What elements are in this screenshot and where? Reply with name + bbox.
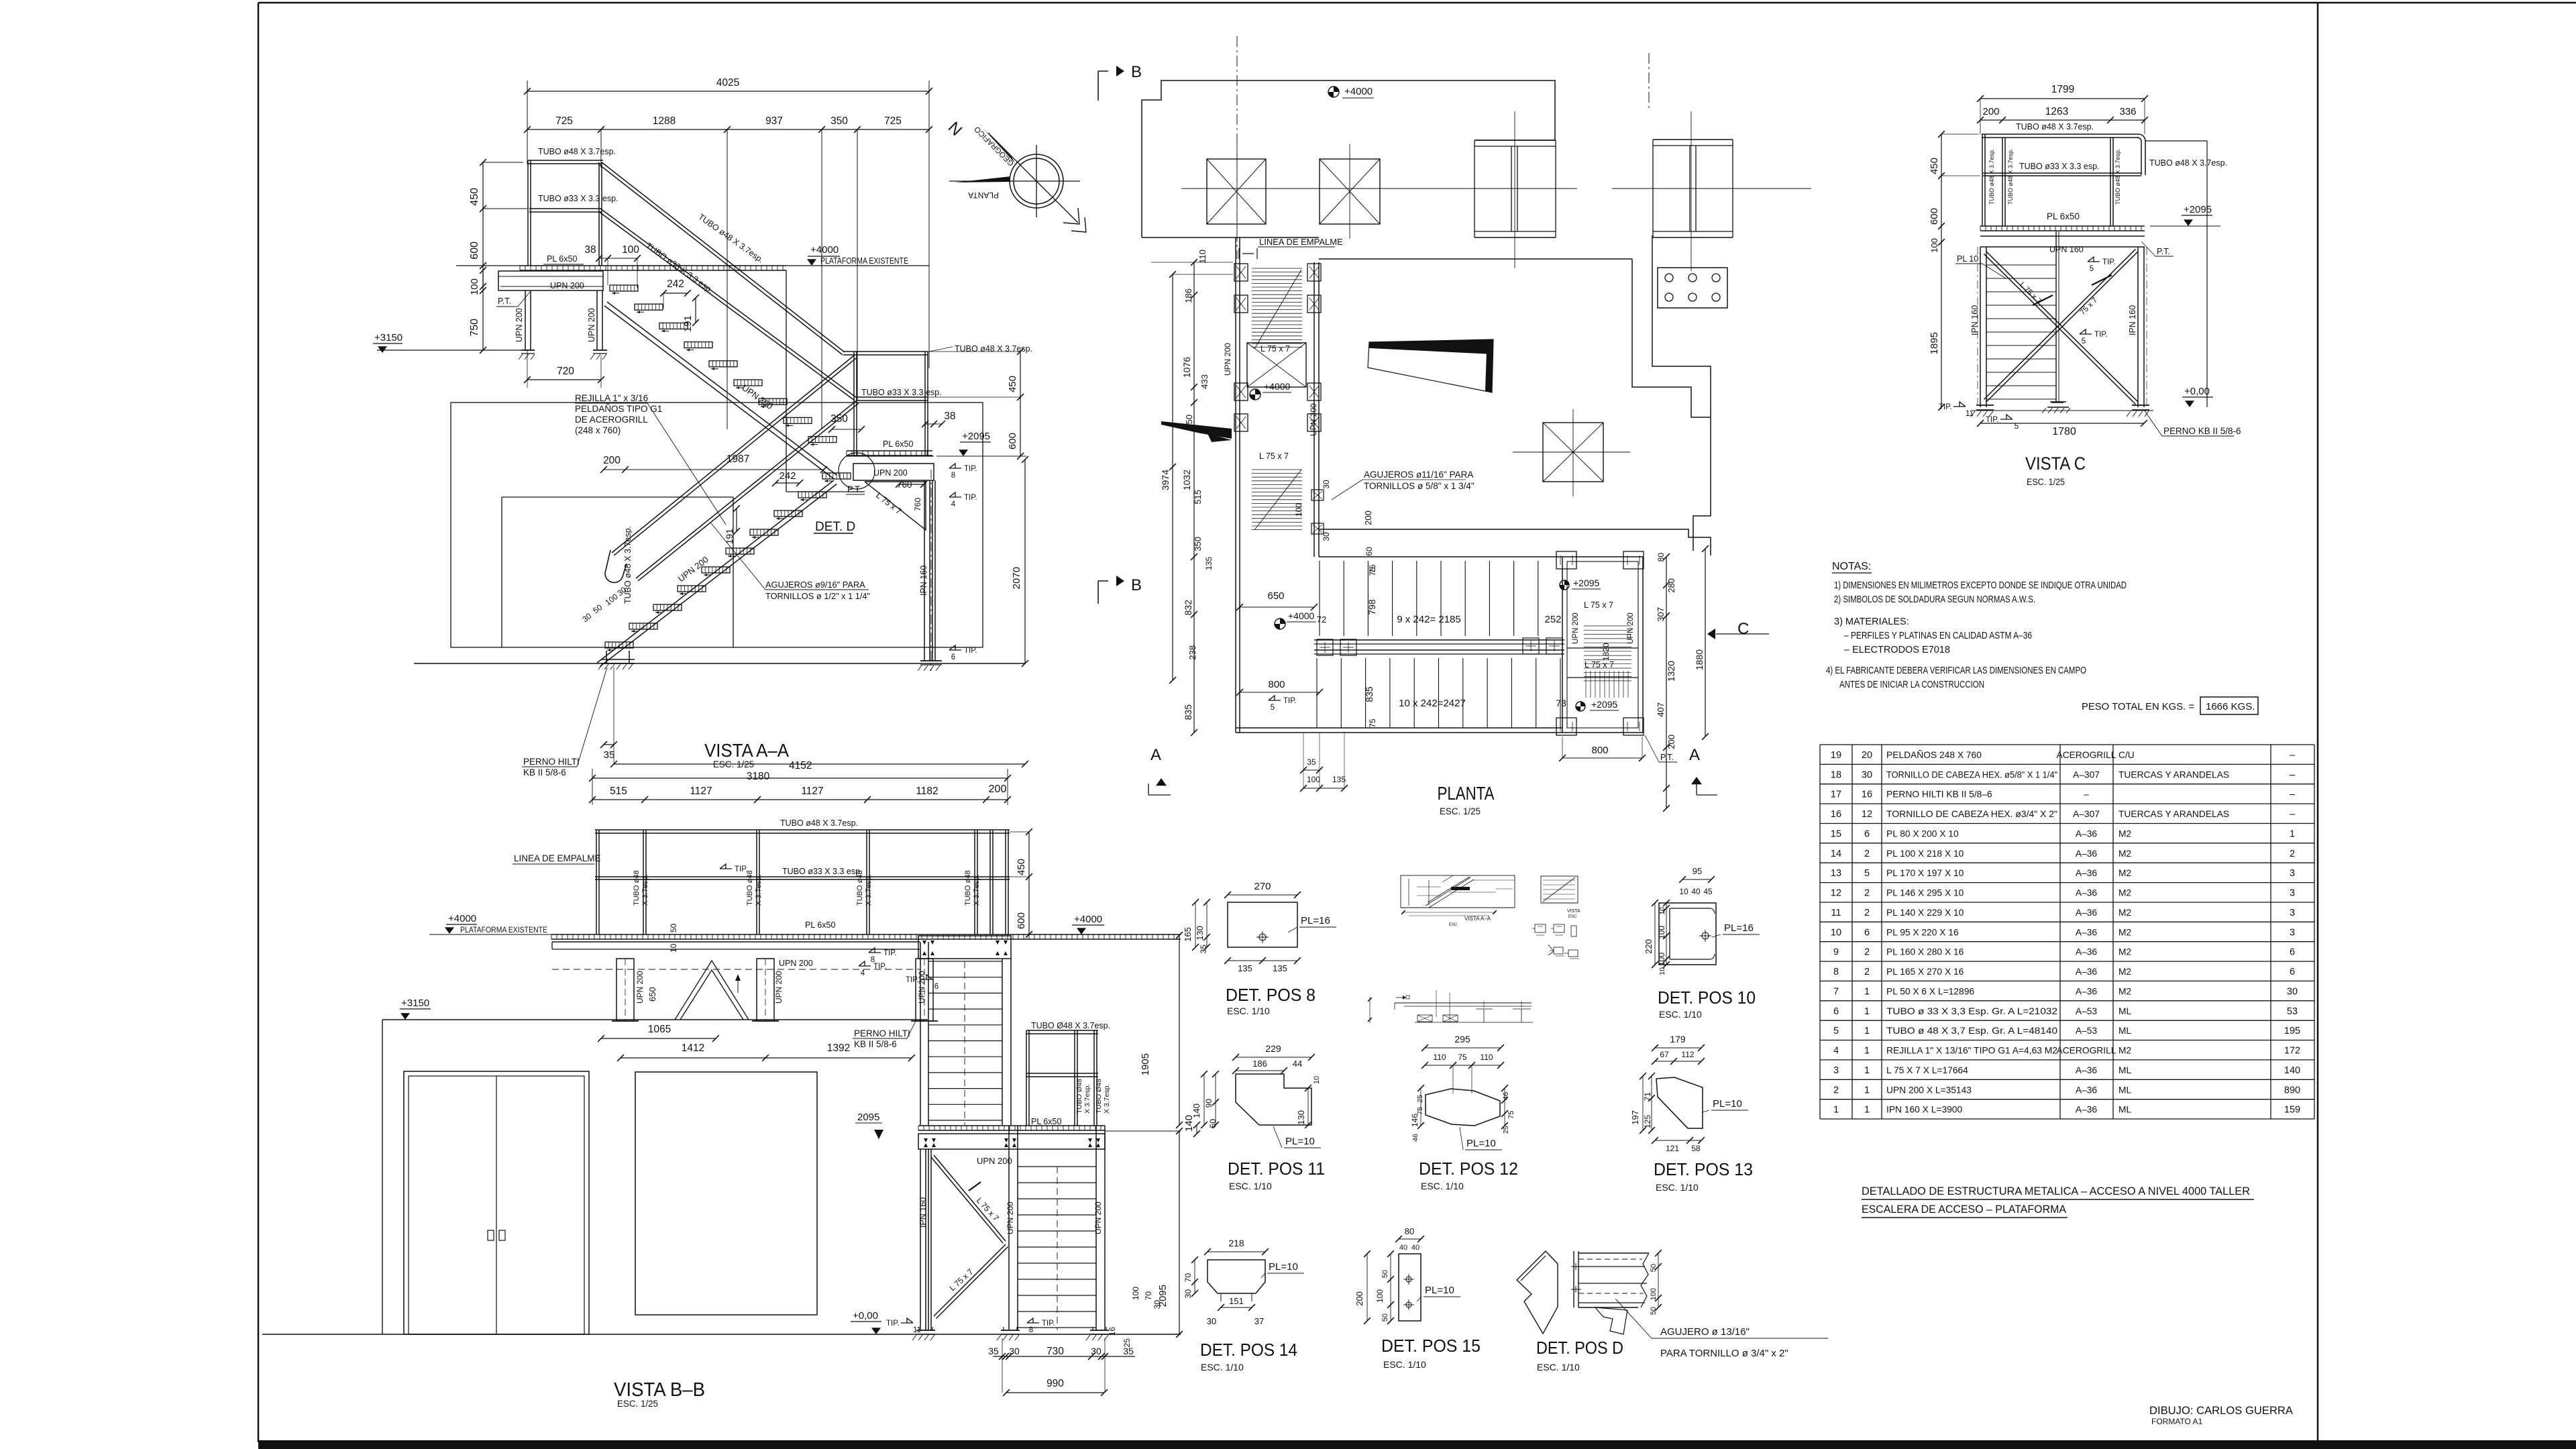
svg-text:832: 832 — [1183, 600, 1193, 616]
svg-text:100: 100 — [1375, 1289, 1385, 1303]
svg-text:+3150: +3150 — [374, 332, 402, 343]
svg-text:835: 835 — [1364, 686, 1375, 702]
svg-text:725: 725 — [884, 115, 902, 127]
svg-text:PL=16: PL=16 — [1724, 922, 1754, 934]
svg-text:200: 200 — [1363, 511, 1373, 525]
svg-text:A–36: A–36 — [2076, 947, 2098, 957]
svg-text:1076: 1076 — [1181, 357, 1192, 378]
svg-text:DET. POS 13: DET. POS 13 — [1654, 1159, 1753, 1179]
svg-text:UPN 200: UPN 200 — [1572, 612, 1580, 644]
svg-text:72: 72 — [1317, 614, 1326, 625]
svg-text:TIP.: TIP. — [873, 963, 887, 971]
svg-text:5: 5 — [2015, 423, 2019, 431]
svg-text:112: 112 — [1681, 1050, 1694, 1059]
svg-text:750: 750 — [469, 319, 480, 337]
svg-text:80: 80 — [1656, 553, 1666, 562]
svg-text:6: 6 — [1833, 1006, 1839, 1017]
svg-text:ML: ML — [2118, 1085, 2131, 1095]
svg-text:P.T.: P.T. — [1660, 753, 1674, 762]
svg-text:UPN 200: UPN 200 — [587, 308, 596, 342]
svg-text:197: 197 — [1630, 1110, 1640, 1125]
svg-text:ML: ML — [2118, 1026, 2131, 1036]
svg-text:336: 336 — [2119, 106, 2136, 117]
svg-text:186: 186 — [1183, 288, 1193, 303]
svg-text:P.T.: P.T. — [2157, 247, 2170, 256]
svg-text:UPN 200 X L=35143: UPN 200 X L=35143 — [1886, 1085, 1972, 1095]
svg-text:A–36: A–36 — [2076, 849, 2098, 859]
svg-text:242: 242 — [779, 470, 796, 482]
svg-text:90: 90 — [1204, 1099, 1214, 1108]
svg-text:A: A — [1150, 746, 1161, 764]
svg-text:4: 4 — [1833, 1046, 1839, 1057]
svg-text:PL 146 X 295 X 10: PL 146 X 295 X 10 — [1886, 888, 1964, 898]
svg-text:6: 6 — [1864, 927, 1870, 938]
svg-text:+4000: +4000 — [448, 913, 476, 924]
svg-text:135: 135 — [1238, 963, 1252, 973]
svg-text:PL 160 X 280 X 16: PL 160 X 280 X 16 — [1886, 947, 1964, 957]
svg-text:6: 6 — [1864, 829, 1870, 840]
svg-text:PLATAFORMA EXISTENTE: PLATAFORMA EXISTENTE — [460, 925, 547, 934]
svg-text:ESC. 1/10: ESC. 1/10 — [1421, 1181, 1464, 1191]
svg-text:A–36: A–36 — [2076, 986, 2098, 996]
svg-text:A–36: A–36 — [2076, 888, 2098, 898]
svg-text:18: 18 — [1831, 769, 1841, 780]
svg-text:TUBO ø48 X 3.7esp.: TUBO ø48 X 3.7esp. — [2149, 158, 2227, 168]
svg-text:13: 13 — [1831, 868, 1841, 879]
svg-text:191: 191 — [724, 529, 735, 545]
svg-text:M2: M2 — [2118, 908, 2131, 918]
svg-text:11: 11 — [1966, 410, 1974, 418]
svg-text:35: 35 — [604, 749, 615, 761]
svg-text:+2095: +2095 — [1591, 699, 1618, 710]
svg-text:PL=10: PL=10 — [1466, 1138, 1496, 1149]
svg-text:38: 38 — [584, 244, 596, 256]
svg-text:890: 890 — [2284, 1085, 2300, 1095]
svg-text:3180: 3180 — [747, 771, 770, 782]
svg-text:38: 38 — [944, 411, 955, 422]
svg-text:TIP.: TIP. — [1283, 697, 1297, 705]
svg-text:20: 20 — [1862, 750, 1872, 761]
svg-text:PL 95 X 220 X 16: PL 95 X 220 X 16 — [1886, 927, 1959, 937]
svg-text:600: 600 — [469, 241, 480, 260]
svg-text:70: 70 — [1144, 1291, 1153, 1301]
svg-text:2: 2 — [1864, 888, 1870, 899]
svg-text:TIP.: TIP. — [735, 865, 748, 873]
svg-text:–: – — [2290, 769, 2296, 780]
svg-text:30: 30 — [2287, 986, 2298, 997]
svg-text:650: 650 — [1267, 590, 1284, 602]
svg-text:1412: 1412 — [682, 1042, 704, 1054]
svg-text:PELDAÑOS TIPO G1: PELDAÑOS TIPO G1 — [575, 404, 662, 414]
svg-text:PERNO HILTI: PERNO HILTI — [523, 757, 580, 767]
svg-text:200: 200 — [1354, 1291, 1364, 1306]
svg-text:M2: M2 — [2118, 927, 2131, 937]
svg-text:+0,00: +0,00 — [2184, 386, 2210, 397]
svg-text:200: 200 — [1666, 735, 1676, 749]
svg-text:PL 6x50: PL 6x50 — [1031, 1117, 1061, 1126]
svg-text:6: 6 — [951, 653, 955, 661]
svg-text:ACEROGRILL: ACEROGRILL — [2057, 1046, 2116, 1056]
svg-text:– PERFILES Y PLATINAS EN CALI: – PERFILES Y PLATINAS EN CALIDAD ASTM A–… — [1844, 631, 2032, 641]
svg-text:ML: ML — [2118, 1065, 2131, 1075]
svg-text:3: 3 — [2290, 868, 2295, 879]
svg-text:M2: M2 — [2118, 829, 2131, 839]
svg-text:A–36: A–36 — [2076, 908, 2098, 918]
svg-text:TUBO ø48 X 3.7esp.: TUBO ø48 X 3.7esp. — [1988, 148, 1995, 205]
svg-text:PERNO HILTI KB II 5/8–6: PERNO HILTI KB II 5/8–6 — [1886, 790, 1992, 800]
svg-text:+4000: +4000 — [1074, 914, 1102, 925]
svg-text:UPN 200: UPN 200 — [1093, 1201, 1103, 1234]
svg-text:6: 6 — [2290, 947, 2295, 958]
svg-text:ESC. 1/10: ESC. 1/10 — [1537, 1362, 1580, 1373]
svg-text:12: 12 — [1862, 809, 1872, 820]
svg-text:4: 4 — [861, 969, 865, 977]
svg-text:252: 252 — [1544, 614, 1561, 625]
svg-text:C: C — [1737, 620, 1749, 638]
svg-text:125: 125 — [1643, 1115, 1652, 1128]
svg-text:350: 350 — [830, 115, 848, 127]
svg-text:58: 58 — [1691, 1144, 1701, 1153]
svg-text:100: 100 — [1131, 1287, 1140, 1300]
svg-text:–: – — [2084, 790, 2089, 800]
svg-text:10: 10 — [1313, 1076, 1321, 1084]
svg-text:LINEA DE EMPALME: LINEA DE EMPALME — [514, 853, 601, 863]
svg-text:ESC: ESC — [1449, 923, 1458, 927]
svg-text:100: 100 — [622, 244, 639, 256]
svg-text:2: 2 — [1864, 967, 1870, 977]
svg-text:50: 50 — [669, 923, 678, 932]
svg-text:172: 172 — [2284, 1046, 2300, 1057]
svg-text:10: 10 — [1658, 967, 1666, 975]
svg-text:146: 146 — [1410, 1114, 1419, 1127]
svg-text:PL 170 X 197 X 10: PL 170 X 197 X 10 — [1886, 868, 1964, 878]
svg-text:238: 238 — [1187, 645, 1197, 660]
svg-text:75: 75 — [1368, 718, 1377, 728]
svg-text:A–307: A–307 — [2073, 769, 2100, 780]
svg-text:PL 80 X 200 X 10: PL 80 X 200 X 10 — [1886, 829, 1959, 839]
svg-text:AGUJEROS ø11/16" PARA: AGUJEROS ø11/16" PARA — [1364, 470, 1473, 480]
svg-text:A–53: A–53 — [2076, 1006, 2098, 1016]
svg-text:DET. POS 12: DET. POS 12 — [1419, 1159, 1518, 1179]
svg-text:186: 186 — [1252, 1059, 1267, 1069]
svg-text:8: 8 — [1029, 1326, 1033, 1334]
svg-text:19: 19 — [1831, 750, 1841, 761]
svg-text:75: 75 — [1458, 1053, 1467, 1062]
svg-text:PL=10: PL=10 — [1713, 1098, 1742, 1110]
svg-text:A–36: A–36 — [2076, 868, 2098, 878]
svg-text:+4000: +4000 — [1264, 381, 1291, 392]
svg-text:1320: 1320 — [1666, 661, 1676, 682]
svg-text:75: 75 — [1368, 567, 1377, 576]
svg-text:PLATAFORMA EXISTENTE: PLATAFORMA EXISTENTE — [820, 256, 908, 266]
svg-text:DIBUJO: CARLOS GUERRA: DIBUJO: CARLOS GUERRA — [2149, 1405, 2293, 1417]
svg-text:25: 25 — [1416, 1095, 1424, 1103]
svg-text:A–36: A–36 — [2076, 1065, 2098, 1075]
svg-text:135: 135 — [1332, 775, 1346, 784]
svg-text:A–307: A–307 — [2073, 809, 2100, 819]
svg-text:TUBO ø 33 X 3,3 Esp. Gr. A L=2: TUBO ø 33 X 3,3 Esp. Gr. A L=21032 — [1886, 1006, 2057, 1016]
svg-text:TUBO ø48 X 3.7esp.: TUBO ø48 X 3.7esp. — [2114, 148, 2121, 205]
svg-text:8: 8 — [1833, 967, 1839, 977]
svg-text:PLANTA: PLANTA — [1438, 783, 1495, 804]
svg-text:220: 220 — [1644, 939, 1654, 954]
svg-text:PL 6x50: PL 6x50 — [883, 439, 913, 449]
svg-text:UPN 200: UPN 200 — [635, 971, 645, 1004]
svg-text:TIP.: TIP. — [906, 976, 919, 984]
svg-text:X 3.7esp.: X 3.7esp. — [755, 875, 763, 906]
svg-text:835: 835 — [1183, 704, 1193, 720]
svg-text:UPN 200: UPN 200 — [515, 308, 524, 342]
svg-text:1: 1 — [1864, 1006, 1870, 1017]
svg-text:11: 11 — [1831, 908, 1841, 918]
svg-text:C/U: C/U — [2118, 750, 2135, 760]
svg-text:ESC. 1/10: ESC. 1/10 — [1227, 1006, 1270, 1016]
svg-text:1: 1 — [1864, 1046, 1870, 1057]
svg-text:TUERCAS Y ARANDELAS: TUERCAS Y ARANDELAS — [2118, 809, 2229, 819]
svg-text:50: 50 — [1650, 1307, 1658, 1315]
svg-text:35: 35 — [1307, 757, 1316, 767]
svg-text:PL 140 X 229 X 10: PL 140 X 229 X 10 — [1886, 908, 1964, 918]
svg-text:937: 937 — [765, 115, 783, 127]
svg-text:VISTA A–A: VISTA A–A — [1464, 916, 1491, 922]
svg-text:ANTES DE INICIAR LA CONSTRUCCI: ANTES DE INICIAR LA CONSTRUCCION — [1839, 680, 1984, 690]
svg-text:1: 1 — [1864, 1085, 1870, 1095]
svg-text:ESC. 1/10: ESC. 1/10 — [1229, 1181, 1272, 1191]
svg-text:307: 307 — [1656, 607, 1666, 622]
svg-text:407: 407 — [1656, 702, 1666, 717]
svg-text:4: 4 — [951, 500, 956, 508]
svg-text:TUBO ø48 X 3.7esp.: TUBO ø48 X 3.7esp. — [538, 147, 616, 156]
svg-text:3974: 3974 — [1160, 470, 1171, 490]
svg-text:IPN 160: IPN 160 — [918, 1197, 928, 1228]
svg-text:TUBO ø33 X 3.3 esp.: TUBO ø33 X 3.3 esp. — [861, 388, 942, 397]
svg-text:+2095: +2095 — [962, 431, 990, 442]
svg-text:TUBO ø 48 X 3,7 Esp. Gr. A L=4: TUBO ø 48 X 3,7 Esp. Gr. A L=48140 — [1886, 1026, 2057, 1036]
svg-text:PARA TORNILLO ø 3/4" x 2": PARA TORNILLO ø 3/4" x 2" — [1660, 1348, 1788, 1359]
svg-text:40: 40 — [1399, 1244, 1407, 1252]
svg-text:X 3.7esp.: X 3.7esp. — [1103, 1084, 1111, 1114]
svg-text:110: 110 — [1480, 1053, 1493, 1062]
svg-text:2) SIMBOLOS DE SOLDADURA SEGU: 2) SIMBOLOS DE SOLDADURA SEGUN NORMAS A.… — [1834, 594, 2035, 605]
svg-text:PL=10: PL=10 — [1269, 1261, 1298, 1273]
svg-text:ESC. 1/25: ESC. 1/25 — [2027, 477, 2065, 487]
svg-text:800: 800 — [1268, 679, 1285, 690]
svg-text:1: 1 — [2290, 829, 2295, 840]
svg-text:TUBO ø48: TUBO ø48 — [633, 870, 641, 906]
svg-text:TORNILLOS ø 1/2" x 1 1/4": TORNILLOS ø 1/2" x 1 1/4" — [765, 591, 870, 601]
svg-text:100: 100 — [1294, 503, 1303, 517]
svg-text:140: 140 — [2284, 1065, 2300, 1076]
svg-text:5: 5 — [1864, 868, 1870, 879]
svg-text:2095: 2095 — [857, 1112, 879, 1123]
svg-text:200: 200 — [603, 455, 621, 466]
svg-text:7: 7 — [1833, 986, 1839, 997]
svg-text:11: 11 — [913, 1326, 921, 1334]
svg-text:UPN 200: UPN 200 — [779, 959, 813, 968]
svg-text:TIP.: TIP. — [2094, 331, 2108, 339]
svg-text:1: 1 — [1864, 1065, 1870, 1076]
svg-text:10 x 242=2427: 10 x 242=2427 — [1399, 698, 1466, 709]
svg-text:1065: 1065 — [648, 1024, 671, 1035]
svg-text:TIP.: TIP. — [2102, 258, 2116, 266]
svg-text:TUERCAS Y ARANDELAS: TUERCAS Y ARANDELAS — [2118, 769, 2229, 780]
svg-text:PELDAÑOS 248 X 760: PELDAÑOS 248 X 760 — [1886, 749, 1982, 760]
svg-text:TUBO Ø48 X 3.7esp.: TUBO Ø48 X 3.7esp. — [1031, 1021, 1110, 1030]
svg-text:PL 6x50: PL 6x50 — [2047, 211, 2080, 221]
svg-text:PL=10: PL=10 — [1425, 1285, 1454, 1296]
svg-text:M2: M2 — [2118, 849, 2131, 859]
svg-text:VISTA A–A: VISTA A–A — [704, 740, 789, 761]
svg-text:M2: M2 — [2118, 888, 2131, 898]
svg-text:PL 10: PL 10 — [1957, 254, 1978, 264]
svg-text:200: 200 — [1982, 106, 1999, 117]
svg-text:600: 600 — [1016, 912, 1027, 929]
svg-text:A–36: A–36 — [2076, 1105, 2098, 1115]
svg-text:+4000: +4000 — [810, 244, 839, 256]
svg-text:1: 1 — [1864, 1105, 1870, 1116]
svg-text:1: 1 — [1833, 1105, 1839, 1116]
svg-text:1895: 1895 — [1929, 332, 1940, 354]
svg-text:95: 95 — [1693, 866, 1702, 876]
svg-text:70: 70 — [1183, 1273, 1193, 1283]
svg-text:–: – — [2290, 809, 2296, 820]
svg-text:DE ACEROGRILL: DE ACEROGRILL — [575, 415, 648, 425]
svg-text:REJILLA 1" X 13/16" TIPO G1 A=: REJILLA 1" X 13/16" TIPO G1 A=4,63 M2 — [1886, 1046, 2057, 1056]
svg-text:5: 5 — [1271, 704, 1275, 712]
svg-text:A–36: A–36 — [2076, 1085, 2098, 1095]
svg-text:TORNILLO DE CABEZA HEX. ø5/8": TORNILLO DE CABEZA HEX. ø5/8" X 1 1/4" — [1886, 769, 2057, 780]
svg-text:M2: M2 — [2118, 986, 2131, 996]
svg-text:1) DIMENSIONES EN MILIMETROS: 1) DIMENSIONES EN MILIMETROS EXCEPTO DON… — [1834, 580, 2127, 591]
svg-text:2: 2 — [1864, 849, 1870, 859]
svg-text:P.T.: P.T. — [847, 484, 862, 494]
svg-text:2: 2 — [1833, 1085, 1839, 1095]
svg-text:12: 12 — [1831, 888, 1841, 899]
svg-text:179: 179 — [1670, 1034, 1686, 1044]
svg-text:110: 110 — [1197, 250, 1207, 264]
svg-text:ESC. 1/10: ESC. 1/10 — [1383, 1359, 1426, 1370]
svg-text:A–36: A–36 — [2076, 829, 2098, 839]
svg-text:3: 3 — [2290, 908, 2295, 918]
svg-text:30: 30 — [1322, 532, 1331, 541]
svg-text:45: 45 — [1703, 887, 1713, 896]
svg-text:FORMATO A1: FORMATO A1 — [2151, 1417, 2203, 1426]
svg-text:280: 280 — [1666, 578, 1676, 593]
svg-text:100: 100 — [1929, 238, 1939, 253]
svg-text:DET. POS D: DET. POS D — [1536, 1338, 1623, 1358]
svg-text:PL 100 X 218 X 10: PL 100 X 218 X 10 — [1886, 849, 1964, 859]
svg-text:UPN 200: UPN 200 — [1627, 612, 1635, 644]
svg-text:TIP.: TIP. — [964, 465, 977, 473]
svg-text:ESCALERA DE ACCESO – PLATA: ESCALERA DE ACCESO – PLATAFORMA — [1862, 1203, 2067, 1216]
svg-text:165: 165 — [1183, 927, 1193, 942]
svg-text:PL 50 X 6 X L=12896: PL 50 X 6 X L=12896 — [1886, 986, 1974, 996]
svg-text:KB II 5/8-6: KB II 5/8-6 — [854, 1039, 897, 1049]
svg-text:100: 100 — [1307, 775, 1320, 784]
svg-text:600: 600 — [1929, 208, 1940, 225]
svg-text:2070: 2070 — [1011, 567, 1022, 589]
svg-text:PESO TOTAL EN KGS. =: PESO TOTAL EN KGS. = — [2082, 701, 2194, 712]
svg-text:TIP.: TIP. — [883, 949, 897, 957]
svg-text:ESC. 1/10: ESC. 1/10 — [1659, 1009, 1702, 1020]
svg-text:1263: 1263 — [2045, 106, 2068, 117]
svg-text:B: B — [1131, 63, 1142, 81]
svg-text:3: 3 — [2290, 888, 2295, 899]
svg-text:229: 229 — [1265, 1043, 1281, 1054]
svg-text:121: 121 — [1666, 1144, 1679, 1153]
svg-text:130: 130 — [1296, 1110, 1306, 1125]
svg-text:M2: M2 — [2118, 868, 2131, 878]
svg-text:10: 10 — [1831, 927, 1841, 938]
svg-text:TUBO ø48 X 3.7esp.: TUBO ø48 X 3.7esp. — [955, 344, 1032, 354]
svg-text:IPN 160: IPN 160 — [2128, 305, 2137, 335]
svg-text:A–36: A–36 — [2076, 927, 2098, 937]
svg-text:3: 3 — [1833, 1065, 1839, 1076]
svg-text:VISTA: VISTA — [1567, 909, 1580, 914]
svg-text:ESC. 1/25: ESC. 1/25 — [1440, 806, 1481, 816]
svg-text:720: 720 — [557, 366, 574, 377]
svg-text:450: 450 — [469, 188, 480, 206]
svg-text:3) MATERIALES:: 3) MATERIALES: — [1834, 616, 1909, 627]
svg-text:30: 30 — [1862, 769, 1872, 780]
svg-text:100: 100 — [1650, 1288, 1658, 1300]
svg-text:100: 100 — [1657, 953, 1666, 966]
svg-text:295: 295 — [1454, 1034, 1470, 1044]
svg-text:75: 75 — [1416, 1107, 1424, 1115]
svg-text:50: 50 — [1650, 1264, 1658, 1272]
svg-text:433: 433 — [1199, 374, 1210, 389]
svg-text:515: 515 — [610, 786, 627, 797]
svg-text:1799: 1799 — [2051, 84, 2074, 95]
svg-text:9 x 242= 2185: 9 x 242= 2185 — [1397, 614, 1461, 625]
svg-text:1182: 1182 — [916, 786, 938, 797]
svg-text:5: 5 — [2090, 265, 2094, 273]
svg-text:PERNO HILTI: PERNO HILTI — [854, 1028, 910, 1038]
svg-text:UPN 200: UPN 200 — [1309, 403, 1318, 436]
svg-text:TIP.: TIP. — [1986, 416, 1999, 424]
svg-text:TORNILLO DE CABEZA HEX. ø3/4": TORNILLO DE CABEZA HEX. ø3/4" X 2" — [1886, 809, 2057, 819]
svg-text:30: 30 — [1322, 480, 1331, 489]
svg-text:130: 130 — [1195, 926, 1205, 941]
svg-text:600: 600 — [1007, 433, 1018, 449]
svg-text:UPN 200: UPN 200 — [774, 971, 784, 1004]
svg-text:80: 80 — [1405, 1226, 1414, 1236]
svg-text:TIP.: TIP. — [1042, 1320, 1055, 1328]
svg-text:6: 6 — [2290, 967, 2295, 977]
svg-text:X 3.7esp.: X 3.7esp. — [1083, 1084, 1091, 1114]
svg-text:1666 KGS.: 1666 KGS. — [2206, 701, 2255, 712]
svg-text:450: 450 — [1007, 376, 1018, 392]
svg-text:73: 73 — [1556, 698, 1566, 708]
svg-text:30: 30 — [1009, 1346, 1020, 1356]
svg-text:2: 2 — [2290, 849, 2295, 859]
svg-text:730: 730 — [1046, 1346, 1064, 1357]
svg-text:TUBO ø33 X 3.3 esp.: TUBO ø33 X 3.3 esp. — [782, 867, 863, 876]
svg-text:1392: 1392 — [827, 1042, 850, 1054]
svg-text:1905: 1905 — [1140, 1053, 1151, 1075]
svg-text:VISTA C: VISTA C — [2025, 453, 2086, 474]
svg-text:5: 5 — [1833, 1026, 1839, 1036]
svg-text:151: 151 — [1229, 1296, 1244, 1306]
svg-text:DET. POS 15: DET. POS 15 — [1381, 1336, 1481, 1356]
svg-text:B: B — [1131, 576, 1142, 594]
svg-text:UPN 200: UPN 200 — [873, 468, 908, 478]
svg-text:725: 725 — [555, 115, 573, 127]
svg-text:PLANTA: PLANTA — [968, 191, 999, 200]
svg-text:9: 9 — [1833, 947, 1839, 958]
svg-text:110: 110 — [1433, 1053, 1446, 1062]
svg-text:53: 53 — [2287, 1006, 2298, 1017]
